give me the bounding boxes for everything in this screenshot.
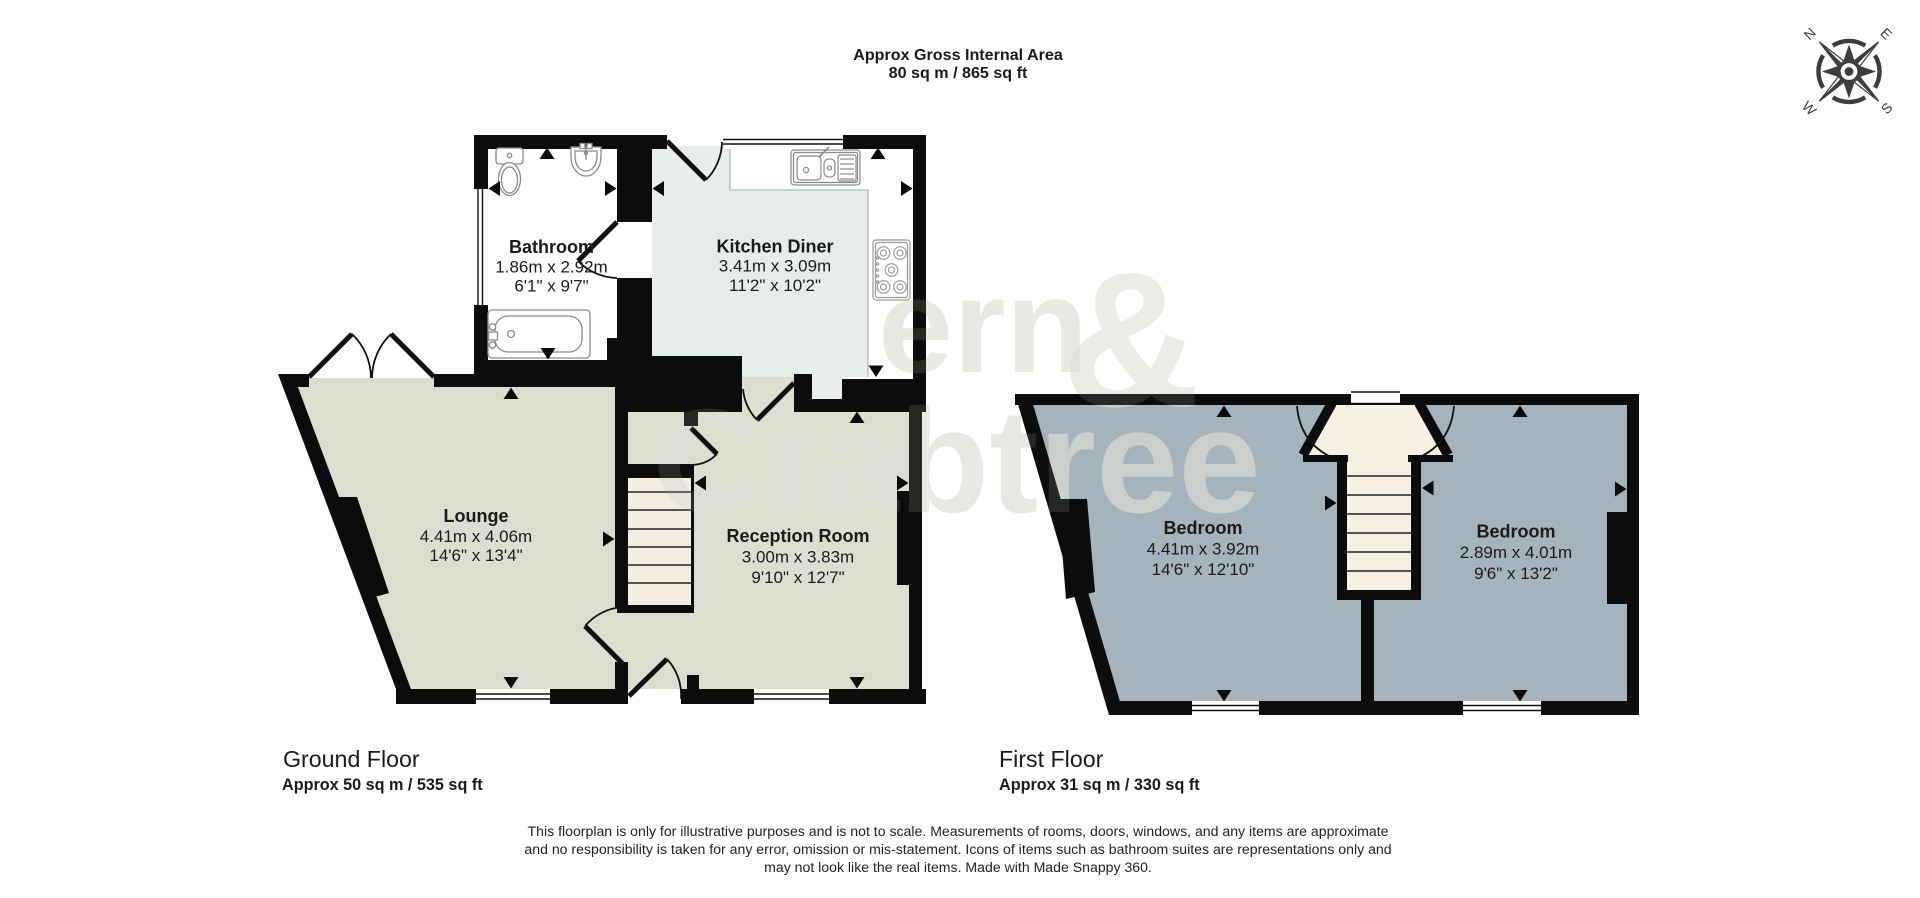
- svg-text:80 sq m / 865 sq ft: 80 sq m / 865 sq ft: [889, 64, 1028, 82]
- svg-text:9'6" x 13'2": 9'6" x 13'2": [1474, 564, 1558, 583]
- svg-text:Approx Gross Internal Area: Approx Gross Internal Area: [853, 46, 1064, 64]
- svg-text:14'6" x 13'4": 14'6" x 13'4": [429, 546, 522, 565]
- svg-text:4.41m x 4.06m: 4.41m x 4.06m: [420, 527, 532, 546]
- svg-text:2.89m x 4.01m: 2.89m x 4.01m: [1460, 543, 1572, 562]
- svg-text:4.41m x 3.92m: 4.41m x 3.92m: [1147, 540, 1259, 559]
- svg-text:6'1" x 9'7": 6'1" x 9'7": [514, 277, 588, 296]
- svg-text:Ground Floor: Ground Floor: [283, 746, 420, 772]
- svg-text:Kitchen Diner: Kitchen Diner: [716, 237, 833, 257]
- svg-text:3.41m x 3.09m: 3.41m x 3.09m: [719, 257, 831, 276]
- svg-text:Bedroom: Bedroom: [1476, 522, 1555, 542]
- svg-text:may not look like the real ite: may not look like the real items. Made w…: [764, 859, 1152, 875]
- svg-text:3.00m x 3.83m: 3.00m x 3.83m: [742, 548, 854, 567]
- svg-text:Reception Room: Reception Room: [726, 526, 869, 546]
- svg-text:Bedroom: Bedroom: [1163, 518, 1242, 538]
- svg-text:Approx 50 sq m / 535 sq ft: Approx 50 sq m / 535 sq ft: [282, 776, 483, 794]
- svg-text:and no responsibility is taken: and no responsibility is taken for any e…: [524, 841, 1391, 857]
- svg-text:9'10" x 12'7": 9'10" x 12'7": [751, 568, 844, 587]
- svg-text:Lounge: Lounge: [444, 506, 509, 526]
- svg-text:11'2" x 10'2": 11'2" x 10'2": [729, 276, 821, 295]
- svg-text:Approx 31 sq m / 330 sq ft: Approx 31 sq m / 330 sq ft: [999, 776, 1200, 794]
- svg-text:14'6" x 12'10": 14'6" x 12'10": [1152, 560, 1255, 579]
- svg-text:Bathroom: Bathroom: [509, 237, 594, 257]
- svg-text:1.86m x 2.92m: 1.86m x 2.92m: [495, 258, 607, 277]
- svg-text:This floorplan is only for ill: This floorplan is only for illustrative …: [528, 823, 1389, 839]
- svg-text:First Floor: First Floor: [999, 746, 1104, 772]
